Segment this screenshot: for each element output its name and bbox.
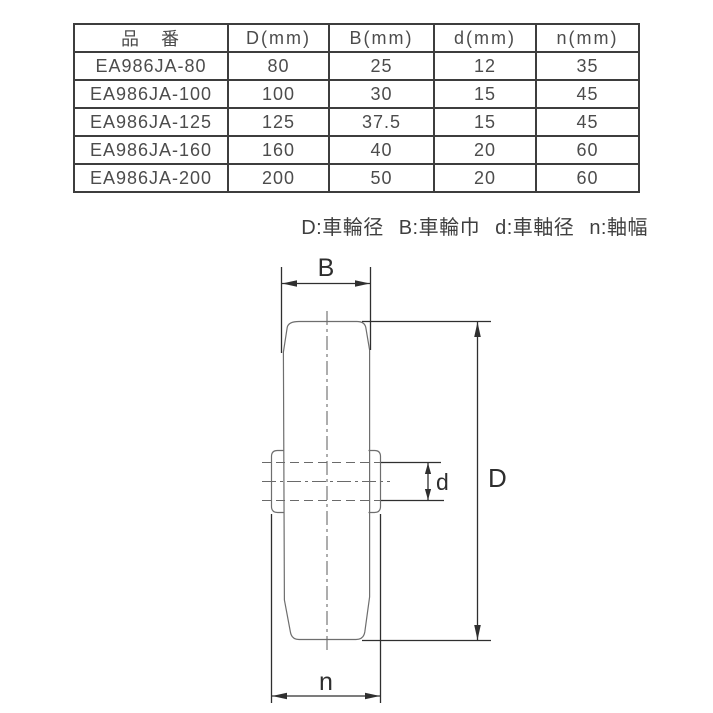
- arrowhead-up: [474, 322, 481, 337]
- arrowhead-right: [355, 280, 370, 287]
- dimension-label-d-upper: D: [488, 463, 507, 493]
- dimension-d: d: [381, 463, 449, 501]
- wheel-side-view: [262, 311, 390, 651]
- dimension-n: n: [272, 514, 381, 703]
- arrowhead-down: [474, 625, 481, 640]
- dimension-B: B: [282, 254, 371, 353]
- dimension-D: D: [362, 322, 507, 641]
- arrowhead-right: [365, 693, 380, 700]
- wheel-dimension-diagram: B D d n: [0, 0, 713, 713]
- arrowhead-up: [425, 463, 431, 474]
- arrowhead-down: [425, 489, 431, 500]
- arrowhead-left: [282, 280, 297, 287]
- dimension-label-n: n: [319, 668, 333, 696]
- dimension-label-b: B: [318, 254, 335, 282]
- catalog-page: 品 番 D(mm) B(mm) d(mm) n(mm) EA986JA-80 8…: [0, 0, 713, 713]
- arrowhead-left: [272, 693, 287, 700]
- dimension-label-d-lower: d: [436, 469, 449, 495]
